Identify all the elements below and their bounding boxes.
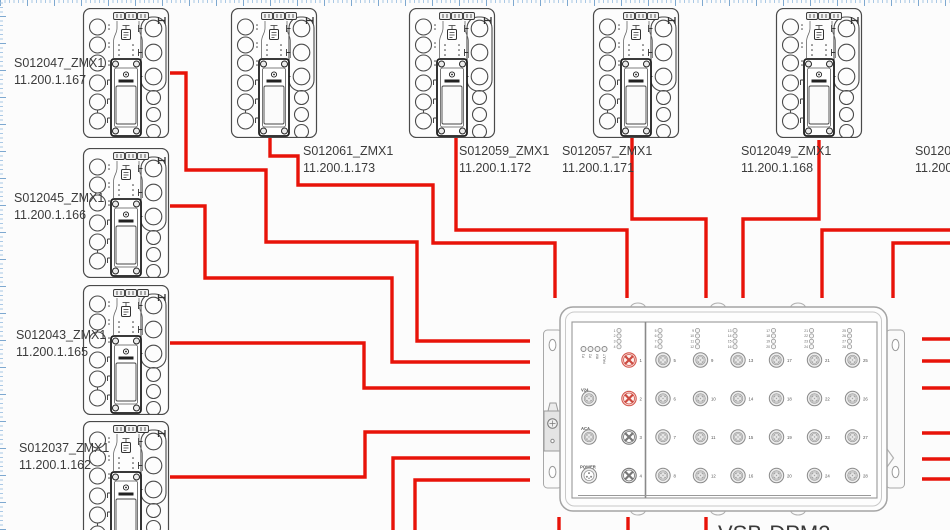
port-led-number: 7 [655,340,657,344]
port-connector-26[interactable] [845,391,859,405]
dpm-device[interactable]: P1 P2 RM FAULT V24 ACA POWER 55667788991… [544,303,905,515]
port-connector-13[interactable] [731,353,745,367]
port-number: 10 [711,396,716,401]
port-led [733,328,737,332]
port-led [617,339,621,343]
port-led [809,328,813,332]
port-connector-16[interactable] [731,468,745,482]
device-label-s012043: S012043_ZMX111.200.1.165 [16,327,106,360]
port-led [695,345,699,349]
port-led-number: 2 [614,334,616,338]
port-number: 13 [749,358,754,363]
port-number: 27 [863,435,868,440]
port-led-number: 10 [690,334,694,338]
device-s012037[interactable] [84,422,169,530]
port-led-number: 24 [804,345,808,349]
port-connector-2[interactable] [622,391,636,405]
port-number: 22 [825,396,830,401]
port-connector-19[interactable] [769,430,783,444]
aca-connector[interactable] [582,430,596,444]
wiring-layer: P1 P2 RM FAULT V24 ACA POWER 55667788991… [0,0,950,530]
port-led-number: 26 [842,334,846,338]
port-led [847,339,851,343]
port-led [809,345,813,349]
port-connector-9[interactable] [693,353,707,367]
port-connector-8[interactable] [656,468,670,482]
port-connector-22[interactable] [807,391,821,405]
port-led-number: 6 [655,334,657,338]
port-connector-4[interactable] [622,468,636,482]
port-number: 25 [863,358,868,363]
status-led-label: P2 [589,354,593,358]
port-connector-28[interactable] [845,468,859,482]
port-led-number: 17 [766,329,770,333]
port-led [695,328,699,332]
port-led-number: 19 [766,340,770,344]
port-connector-24[interactable] [807,468,821,482]
status-led-label: FAULT [603,354,607,364]
port-led [847,328,851,332]
port-connector-18[interactable] [769,391,783,405]
port-connector-23[interactable] [807,430,821,444]
port-connector-11[interactable] [693,430,707,444]
port-led [617,345,621,349]
port-led-number: 25 [842,329,846,333]
port-number: 18 [787,396,792,401]
port-led-number: 12 [690,345,694,349]
port-led [658,334,662,338]
device-s012049[interactable] [777,9,862,139]
port-led-number: 22 [804,334,808,338]
port-led [617,334,621,338]
port-number: 12 [711,473,716,478]
port-number: 16 [749,473,754,478]
port-led [809,334,813,338]
port-number: 11 [711,435,716,440]
status-led-label: P1 [582,354,586,358]
port-number: 21 [825,358,830,363]
port-led [771,334,775,338]
port-connector-25[interactable] [845,353,859,367]
port-led-number: 11 [690,340,694,344]
port-led-number: 3 [614,340,616,344]
port-led [733,334,737,338]
device-label-s012053: S01205311.200.1 [915,143,950,176]
port-connector-15[interactable] [731,430,745,444]
dpm-title: VSB-DPM2 [718,521,830,530]
port-led-number: 23 [804,340,808,344]
device-label-s012047: S012047_ZMX111.200.1.167 [14,55,104,88]
port-led-number: 16 [728,345,732,349]
device-s012061[interactable] [232,9,317,139]
port-led [771,339,775,343]
port-led-number: 4 [614,345,616,349]
cable-s012037[interactable] [170,432,530,477]
port-number: 20 [787,473,792,478]
port-led [658,345,662,349]
port-connector-14[interactable] [731,391,745,405]
port-number: 24 [825,473,830,478]
port-connector-6[interactable] [656,391,670,405]
port-led-number: 13 [728,329,732,333]
port-led-number: 27 [842,340,846,344]
port-number: 26 [863,396,868,401]
port-number: 17 [787,358,792,363]
cable-bottom-b[interactable] [415,480,530,530]
diagram-canvas: P1 P2 RM FAULT V24 ACA POWER 55667788991… [0,0,950,530]
port-led-number: 8 [655,345,657,349]
port-connector-12[interactable] [693,468,707,482]
port-led [771,328,775,332]
port-connector-3[interactable] [622,430,636,444]
port-number: 15 [749,435,754,440]
port-led [733,339,737,343]
status-led-label: RM [596,354,600,359]
port-number: 28 [863,473,868,478]
port-led [809,339,813,343]
port-led [658,328,662,332]
port-connector-7[interactable] [656,430,670,444]
port-led [771,345,775,349]
port-connector-27[interactable] [845,430,859,444]
port-led-number: 14 [728,334,732,338]
port-led-number: 1 [614,329,616,333]
port-led-number: 21 [804,329,808,333]
cable-right-in[interactable] [893,243,950,298]
port-connector-5[interactable] [656,353,670,367]
power-connector[interactable] [581,468,596,483]
port-led [847,334,851,338]
device-label-s012061: S012061_ZMX111.200.1.173 [303,143,393,176]
v24-connector[interactable] [582,391,596,405]
device-label-s012045: S012045_ZMX111.200.1.166 [14,190,104,223]
port-connector-10[interactable] [693,391,707,405]
device-s012059[interactable] [410,9,495,139]
port-led [617,328,621,332]
port-led [847,345,851,349]
port-connector-17[interactable] [769,353,783,367]
port-led [695,339,699,343]
port-led-number: 5 [655,329,657,333]
port-number: 23 [825,435,830,440]
port-connector-1[interactable] [622,353,636,367]
cable-s012043[interactable] [170,343,530,388]
port-led [733,345,737,349]
device-label-s012057: S012057_ZMX111.200.1.171 [562,143,652,176]
port-led-number: 9 [692,329,694,333]
device-label-s012049: S012049_ZMX111.200.1.168 [741,143,831,176]
port-connector-21[interactable] [807,353,821,367]
port-led-number: 28 [842,345,846,349]
port-led [658,339,662,343]
port-number: 19 [787,435,792,440]
port-led-number: 20 [766,345,770,349]
device-label-s012059: S012059_ZMX111.200.1.172 [459,143,549,176]
port-led-number: 15 [728,340,732,344]
port-connector-20[interactable] [769,468,783,482]
cable-s012053[interactable] [822,230,950,298]
port-led [695,334,699,338]
device-label-s012037: S012037_ZMX111.200.1.162 [19,440,109,473]
port-number: 14 [749,396,754,401]
device-s012057[interactable] [594,9,679,139]
port-led-number: 18 [766,334,770,338]
